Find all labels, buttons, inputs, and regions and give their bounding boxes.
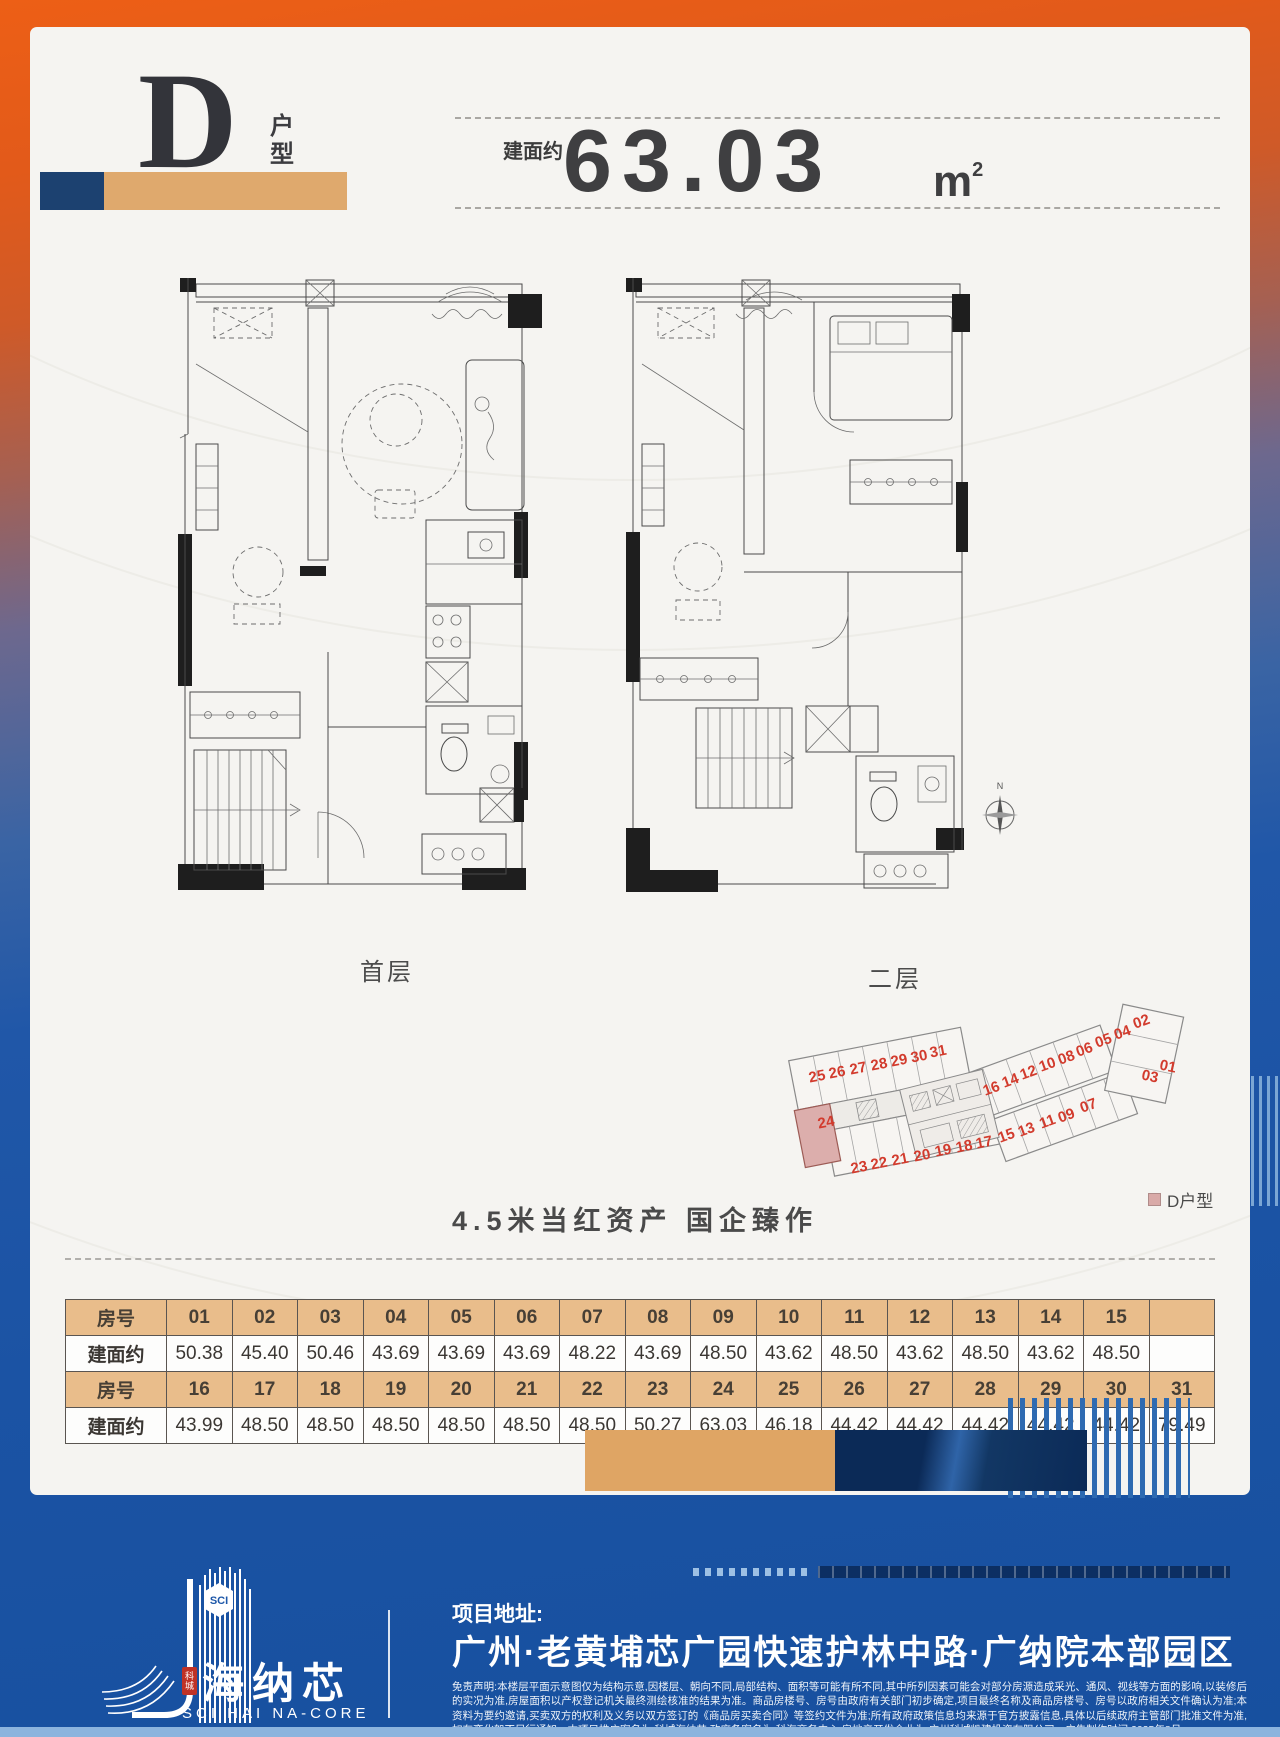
table-cell: 19	[363, 1372, 429, 1408]
site-unit-number: 03	[1140, 1067, 1160, 1087]
dashed-separator	[65, 1258, 1215, 1260]
table-cell: 43.69	[429, 1336, 495, 1372]
table-cell: 02	[232, 1300, 298, 1336]
site-unit-number: 23	[849, 1158, 869, 1178]
table-cell: 08	[625, 1300, 691, 1336]
site-unit-number: 29	[889, 1051, 909, 1071]
project-address: 广州·老黄埔芯广园快速护林中路·广纳院本部园区	[452, 1625, 1252, 1674]
navy-bar	[40, 172, 104, 210]
row-label-cell: 建面约	[66, 1408, 167, 1444]
table-cell: 48.50	[1084, 1336, 1150, 1372]
table-cell: 14	[1018, 1300, 1084, 1336]
logo-badge-text: SCI	[210, 1595, 228, 1607]
navy-decoration-block	[835, 1430, 1087, 1491]
table-cell: 26	[822, 1372, 888, 1408]
table-cell: 22	[560, 1372, 626, 1408]
brand-seal: 科 城	[182, 1667, 197, 1695]
table-cell	[1149, 1336, 1215, 1372]
table-row: 房号010203040506070809101112131415	[66, 1300, 1215, 1336]
header-color-bar	[40, 172, 347, 210]
site-unit-number: 27	[848, 1059, 868, 1079]
table-cell: 21	[494, 1372, 560, 1408]
first-floor-label: 首层	[360, 952, 414, 987]
table-row: 建面约50.3845.4050.4643.6943.6943.6948.2243…	[66, 1336, 1215, 1372]
svg-text:N: N	[997, 781, 1004, 791]
table-cell: 48.50	[822, 1336, 888, 1372]
site-unit-number: 25	[807, 1067, 827, 1087]
content-card: D 户 型 建面约 63.03 m2	[30, 27, 1250, 1495]
unit-type-suffix-char: 型	[270, 141, 296, 169]
area-block: 建面约 63.03 m2	[455, 117, 1220, 209]
table-cell: 11	[822, 1300, 888, 1336]
table-cell: 43.62	[887, 1336, 953, 1372]
area-label: 建面约	[503, 135, 563, 164]
site-unit-number: 17	[974, 1133, 994, 1153]
table-cell: 43.69	[625, 1336, 691, 1372]
site-unit-number: 01	[1158, 1057, 1178, 1077]
second-floor-plan	[618, 272, 983, 917]
site-unit-number: 21	[890, 1150, 910, 1170]
area-superscript: 2	[972, 159, 983, 181]
unit-type-suffix: 户 型	[270, 113, 296, 169]
table-cell: 18	[298, 1372, 364, 1408]
site-unit-number: 20	[912, 1146, 932, 1166]
table-cell: 13	[953, 1300, 1019, 1336]
table-cell: 43.62	[1018, 1336, 1084, 1372]
tick-strip-dark	[818, 1566, 1230, 1578]
row-label-cell: 房号	[66, 1300, 167, 1336]
table-cell: 48.50	[298, 1408, 364, 1444]
site-unit-number: 22	[869, 1154, 889, 1174]
table-cell	[1149, 1300, 1215, 1336]
legend-color-swatch	[1148, 1193, 1161, 1206]
tick-strip-light	[693, 1568, 813, 1576]
site-unit-number: 18	[954, 1137, 974, 1157]
table-cell: 09	[691, 1300, 757, 1336]
address-label: 项目地址:	[452, 1598, 543, 1628]
table-cell: 48.50	[429, 1408, 495, 1444]
table-cell: 48.50	[232, 1408, 298, 1444]
unit-type-suffix-char: 户	[270, 113, 296, 141]
table-cell: 48.22	[560, 1336, 626, 1372]
poster: D 户 型 建面约 63.03 m2	[0, 0, 1280, 1737]
table-cell: 20	[429, 1372, 495, 1408]
dashed-line	[455, 207, 1220, 209]
footer: SCI 科 城 海纳芯 SCI HAI NA-CORE 项目地址: 广州·老黄埔…	[0, 1495, 1280, 1737]
site-unit-number: 31	[928, 1042, 948, 1062]
site-unit-number: 19	[933, 1141, 953, 1161]
table-cell: 04	[363, 1300, 429, 1336]
compass-icon: N	[975, 779, 1025, 843]
table-cell: 01	[167, 1300, 233, 1336]
table-cell: 06	[494, 1300, 560, 1336]
table-cell: 43.69	[494, 1336, 560, 1372]
site-unit-number: 26	[827, 1063, 847, 1083]
table-cell: 50.46	[298, 1336, 364, 1372]
table-cell: 48.50	[363, 1408, 429, 1444]
table-cell: 48.50	[494, 1408, 560, 1444]
table-cell: 43.62	[756, 1336, 822, 1372]
edge-stripe-decoration	[1251, 1076, 1280, 1206]
bottom-band-decoration	[0, 1727, 1280, 1737]
table-cell: 12	[887, 1300, 953, 1336]
table-cell: 24	[691, 1372, 757, 1408]
brand-name-en: SCI HAI NA-CORE	[182, 1705, 370, 1722]
table-cell: 43.69	[363, 1336, 429, 1372]
area-unit: m2	[933, 157, 983, 207]
table-cell: 25	[756, 1372, 822, 1408]
table-cell: 43.99	[167, 1408, 233, 1444]
table-cell: 05	[429, 1300, 495, 1336]
brand-name-cn: 海纳芯	[202, 1650, 352, 1711]
table-cell: 15	[1084, 1300, 1150, 1336]
tagline: 4.5米当红资产 国企臻作	[320, 1199, 950, 1238]
legend-label: D户型	[1167, 1187, 1213, 1212]
table-cell: 48.50	[691, 1336, 757, 1372]
table-cell: 07	[560, 1300, 626, 1336]
tan-decoration-block	[585, 1430, 835, 1491]
table-cell: 50.38	[167, 1336, 233, 1372]
row-label-cell: 建面约	[66, 1336, 167, 1372]
row-label-cell: 房号	[66, 1372, 167, 1408]
table-cell: 16	[167, 1372, 233, 1408]
table-cell: 10	[756, 1300, 822, 1336]
footer-divider	[388, 1610, 390, 1718]
site-plan-svg: 2526272829303124232221201918171614121008…	[705, 985, 1185, 1205]
table-cell: 23	[625, 1372, 691, 1408]
table-cell: 17	[232, 1372, 298, 1408]
tan-bar	[104, 172, 347, 210]
area-value: 63.03	[563, 117, 833, 205]
first-floor-plan	[170, 272, 560, 922]
table-cell: 27	[887, 1372, 953, 1408]
table-cell: 45.40	[232, 1336, 298, 1372]
table-cell: 48.50	[953, 1336, 1019, 1372]
table-cell: 03	[298, 1300, 364, 1336]
site-unit-number: 30	[909, 1047, 929, 1067]
site-unit-number: 28	[869, 1055, 889, 1075]
site-plan-legend: D户型	[1148, 1187, 1213, 1212]
